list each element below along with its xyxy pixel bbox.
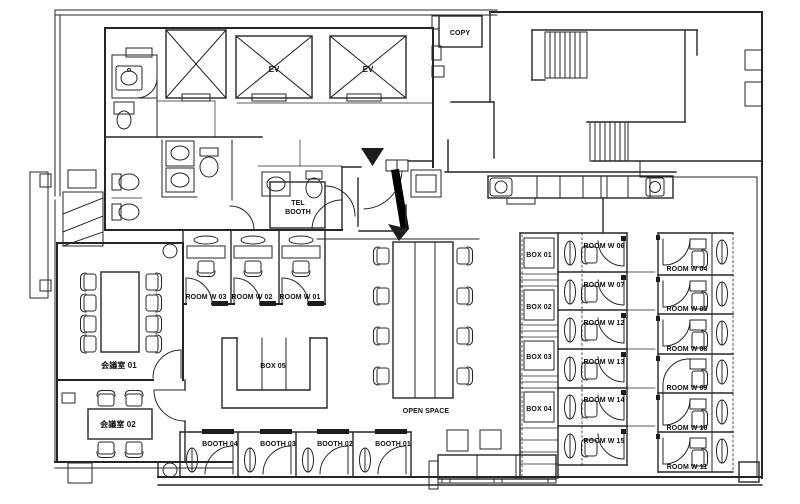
side-table xyxy=(447,430,468,451)
booth-02: BOOTH 02 xyxy=(303,429,353,474)
floor-plan-drawing: EV EV COPY xyxy=(0,0,800,504)
booth-01-label: BOOTH 01 xyxy=(375,441,411,448)
side-table xyxy=(480,430,501,449)
room-w02: ROOM W 02 xyxy=(232,236,273,304)
right-room-column: ROOM W 04 ROOM W 05 ROOM W 08 ROOM W 09 xyxy=(656,233,733,472)
copy-room-label: COPY xyxy=(450,30,470,37)
room-w06-label: ROOM W 06 xyxy=(584,243,625,250)
entrance-marker-triangle xyxy=(361,148,384,166)
mid-room-column: ROOM W 06 ROOM W 07 ROOM W 12 ROOM W 13 … xyxy=(558,233,655,465)
elevator-left-label: EV xyxy=(269,65,280,74)
elevator-left: EV xyxy=(236,36,312,101)
elevator-right: EV xyxy=(330,36,406,101)
stairwell xyxy=(532,30,685,161)
booth-04: BOOTH 04 xyxy=(187,429,238,474)
sofa xyxy=(429,455,556,489)
box-01-label: BOX 01 xyxy=(526,252,552,259)
room-w11: ROOM W 11 xyxy=(656,434,728,471)
box-04-label: BOX 04 xyxy=(526,406,552,413)
booth-row: BOOTH 04 BOOTH 03 BOOTH 02 BOOTH 01 xyxy=(180,429,411,477)
floor-plan: EV EV COPY xyxy=(0,0,800,504)
accessible-wc xyxy=(200,140,342,200)
meeting-room-01-label: 会議室 01 xyxy=(101,360,137,370)
room-w03-label: ROOM W 03 xyxy=(186,294,227,301)
room-w15-label: ROOM W 15 xyxy=(584,438,625,445)
room-w09-label: ROOM W 09 xyxy=(667,385,708,392)
urinal xyxy=(114,102,134,114)
toilet-stalls xyxy=(112,174,142,220)
box-02-label: BOX 02 xyxy=(526,304,552,311)
tel-booth-label-1: TEL xyxy=(291,200,305,207)
room-w10: ROOM W 10 xyxy=(656,395,728,432)
room-w07: ROOM W 07 xyxy=(565,275,627,305)
room-w08-label: ROOM W 08 xyxy=(667,346,708,353)
box-05-counter: BOX 05 xyxy=(222,338,327,408)
box-03-label: BOX 03 xyxy=(526,354,552,361)
booth-03: BOOTH 03 xyxy=(245,429,296,474)
room-w04-label: ROOM W 04 xyxy=(667,266,708,273)
restrooms xyxy=(105,48,342,230)
room-w02-label: ROOM W 02 xyxy=(232,294,273,301)
entrance xyxy=(358,140,448,241)
booth-02-label: BOOTH 02 xyxy=(317,441,353,448)
room-w13-label: ROOM W 13 xyxy=(584,359,625,366)
stool xyxy=(163,244,177,258)
tel-booth-label-2: BOOTH xyxy=(285,209,311,216)
meeting-table-01 xyxy=(101,272,139,352)
room-w15: ROOM W 15 xyxy=(565,429,627,459)
wash-basins xyxy=(166,141,194,192)
room-w05: ROOM W 05 xyxy=(656,277,728,313)
room-w07-label: ROOM W 07 xyxy=(584,282,625,289)
room-w08: ROOM W 08 xyxy=(656,316,728,353)
room-w12-label: ROOM W 12 xyxy=(584,320,625,327)
box-05-label: BOX 05 xyxy=(260,363,286,370)
room-w10-label: ROOM W 10 xyxy=(667,425,708,432)
room-w04: ROOM W 04 xyxy=(656,235,728,273)
meeting-room-02-label: 会議室 02 xyxy=(100,419,136,429)
elevator-bank: EV EV xyxy=(166,30,406,101)
stool xyxy=(163,463,177,477)
elevator-right-label: EV xyxy=(363,65,374,74)
room-w11-label: ROOM W 11 xyxy=(667,464,708,471)
booth-03-label: BOOTH 03 xyxy=(260,441,296,448)
booth-01: BOOTH 01 xyxy=(360,429,411,474)
kitchen-counter xyxy=(445,172,676,233)
room-w01: ROOM W 01 xyxy=(280,236,321,304)
room-w14: ROOM W 14 xyxy=(565,390,627,420)
room-w12: ROOM W 12 xyxy=(565,313,627,343)
copy-room: COPY xyxy=(432,16,482,77)
room-w03: ROOM W 03 xyxy=(186,236,227,304)
box-shelf-column: BOX 01 BOX 02 BOX 03 BOX 04 xyxy=(520,233,558,478)
small-rooms-row: ROOM W 03 ROOM W 02 ROOM W 01 xyxy=(183,230,325,306)
mop-sink xyxy=(116,66,142,90)
booth-04-label: BOOTH 04 xyxy=(202,441,238,448)
room-w06: ROOM W 06 xyxy=(565,236,627,266)
room-w05-label: ROOM W 05 xyxy=(667,306,708,313)
room-w01-label: ROOM W 01 xyxy=(280,294,321,301)
open-space-label: OPEN SPACE xyxy=(403,408,450,415)
long-table xyxy=(393,242,453,398)
room-w13: ROOM W 13 xyxy=(565,352,627,382)
service-shaft xyxy=(166,30,226,101)
room-w14-label: ROOM W 14 xyxy=(584,397,625,404)
